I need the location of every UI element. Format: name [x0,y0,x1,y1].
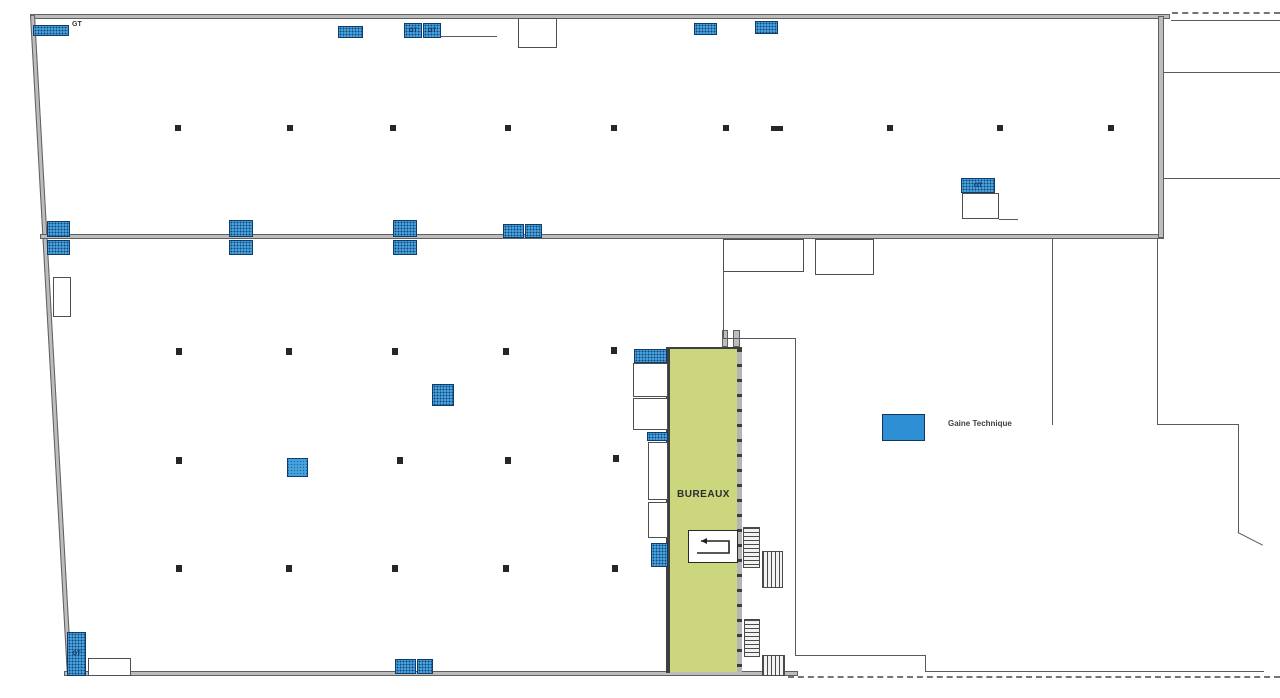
column-marker [503,565,509,572]
wall-line [723,272,724,339]
ramp-arrow-icon [689,531,739,564]
column-marker [613,455,619,462]
stairs [744,619,760,657]
legend-gaine-label: Gaine Technique [948,419,1012,428]
column-marker [1108,125,1114,131]
column-marker [997,125,1003,131]
wall-line [999,219,1018,220]
stairs [762,551,783,588]
dashed-boundary-line [1172,12,1280,14]
column-marker [176,348,182,355]
dashed-boundary-line [788,676,1280,678]
wall-line [1171,20,1280,21]
gt-duct-box: GT [423,23,441,38]
column-marker [175,125,181,131]
gt-duct-box [525,224,542,238]
room-outline [723,239,804,272]
wall-line [1157,239,1158,425]
wall-line [795,655,926,656]
wall-segment [40,234,1164,239]
room-outline [648,442,668,500]
gt-duct-box [393,240,417,255]
column-marker [176,457,182,464]
wall-segment [1158,16,1164,238]
column-marker [390,125,396,131]
wall-line [1238,424,1239,533]
gt-top-left-label: GT [72,21,82,28]
gt-duct-box [47,221,70,237]
wall-line [925,655,926,672]
wall-line [1157,424,1239,425]
bureaux-zone: BUREAUX [670,349,737,672]
stairs [762,655,785,676]
wall-line [723,338,796,339]
ramp-room [688,530,738,563]
column-marker [505,125,511,131]
column-marker [887,125,893,131]
wall-line [1238,532,1263,546]
gt-duct-box [287,458,308,477]
gt-duct-box [33,25,69,36]
gt-duct-box [393,220,417,237]
column-marker [771,126,783,131]
gt-duct-box [432,384,454,406]
wall-line [1164,72,1280,73]
wall-line [1052,239,1053,425]
gt-duct-box [694,23,717,35]
room-outline [962,193,999,219]
room-outline [633,363,668,397]
column-marker [286,565,292,572]
gt-duct-box [47,240,70,255]
floor-plan: BUREAUX Gaine Technique GT GTGTGTGT [0,0,1280,698]
column-marker [392,565,398,572]
gt-duct-box [417,659,433,674]
column-marker [723,125,729,131]
gt-duct-box [651,543,668,567]
column-marker [176,565,182,572]
wall-segment [30,14,1170,19]
column-marker [611,125,617,131]
wall-line [795,338,796,656]
column-marker [503,348,509,355]
wall-line [925,671,1264,672]
column-marker [611,347,617,354]
gt-duct-box [503,224,524,238]
gt-duct-box: GT [67,632,86,676]
gt-duct-box [634,349,667,363]
gt-duct-box: GT [961,178,995,193]
wall-segment [30,15,72,676]
room-outline [53,277,71,317]
bureaux-right-wall [737,349,742,672]
column-marker [505,457,511,464]
room-outline [633,398,668,430]
wall-line [1164,178,1280,179]
room-outline [518,18,557,48]
wall-line [440,36,497,37]
room-outline [648,502,668,538]
column-marker [612,565,618,572]
column-marker [286,348,292,355]
column-marker [287,125,293,131]
gt-duct-box [229,240,253,255]
stairs [743,527,760,568]
gt-duct-box [338,26,363,38]
gt-duct-box: GT [404,23,422,38]
legend-gaine-swatch [882,414,925,441]
room-outline [815,239,874,275]
column-marker [397,457,403,464]
gt-duct-box [395,659,416,674]
gt-duct-box [647,432,668,441]
room-outline [88,658,131,676]
bureaux-label: BUREAUX [670,489,737,500]
gt-duct-box [755,21,778,34]
column-marker [392,348,398,355]
gt-duct-box [229,220,253,237]
